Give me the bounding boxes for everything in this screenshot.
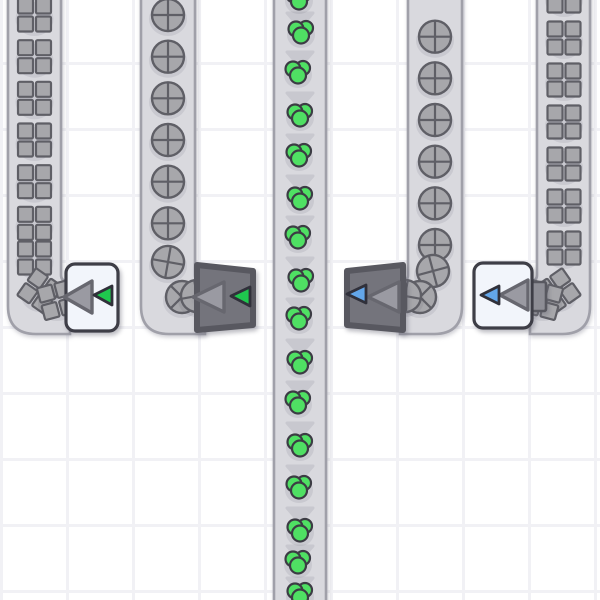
item-gray-crossed-circle-icon — [152, 41, 184, 73]
item-gray-crossed-circle-icon — [152, 0, 184, 31]
launcher-machine-dark-green[interactable] — [193, 265, 253, 330]
item-gray-crossed-circle-icon — [152, 166, 184, 198]
item-gray-crossed-circle-icon — [419, 104, 451, 136]
item-gray-crossed-circle-icon — [419, 62, 451, 94]
item-gray-crossed-circle-icon — [419, 187, 451, 219]
item-gray-crossed-circle-icon — [419, 21, 451, 53]
conveyor-belt-center[interactable] — [274, 0, 326, 600]
item-gray-crossed-circle-icon — [419, 146, 451, 178]
item-green-triple-berry-icon — [288, 583, 313, 600]
game-viewport — [0, 0, 600, 600]
item-gray-crossed-circle-icon — [152, 207, 184, 239]
launcher-machine-dark-blue[interactable] — [347, 265, 406, 330]
sorter-machine-white-green[interactable] — [64, 264, 118, 331]
item-gray-crossed-circle-icon — [152, 124, 184, 156]
game-world[interactable] — [0, 0, 600, 600]
item-gray-crossed-circle-icon — [152, 82, 184, 114]
